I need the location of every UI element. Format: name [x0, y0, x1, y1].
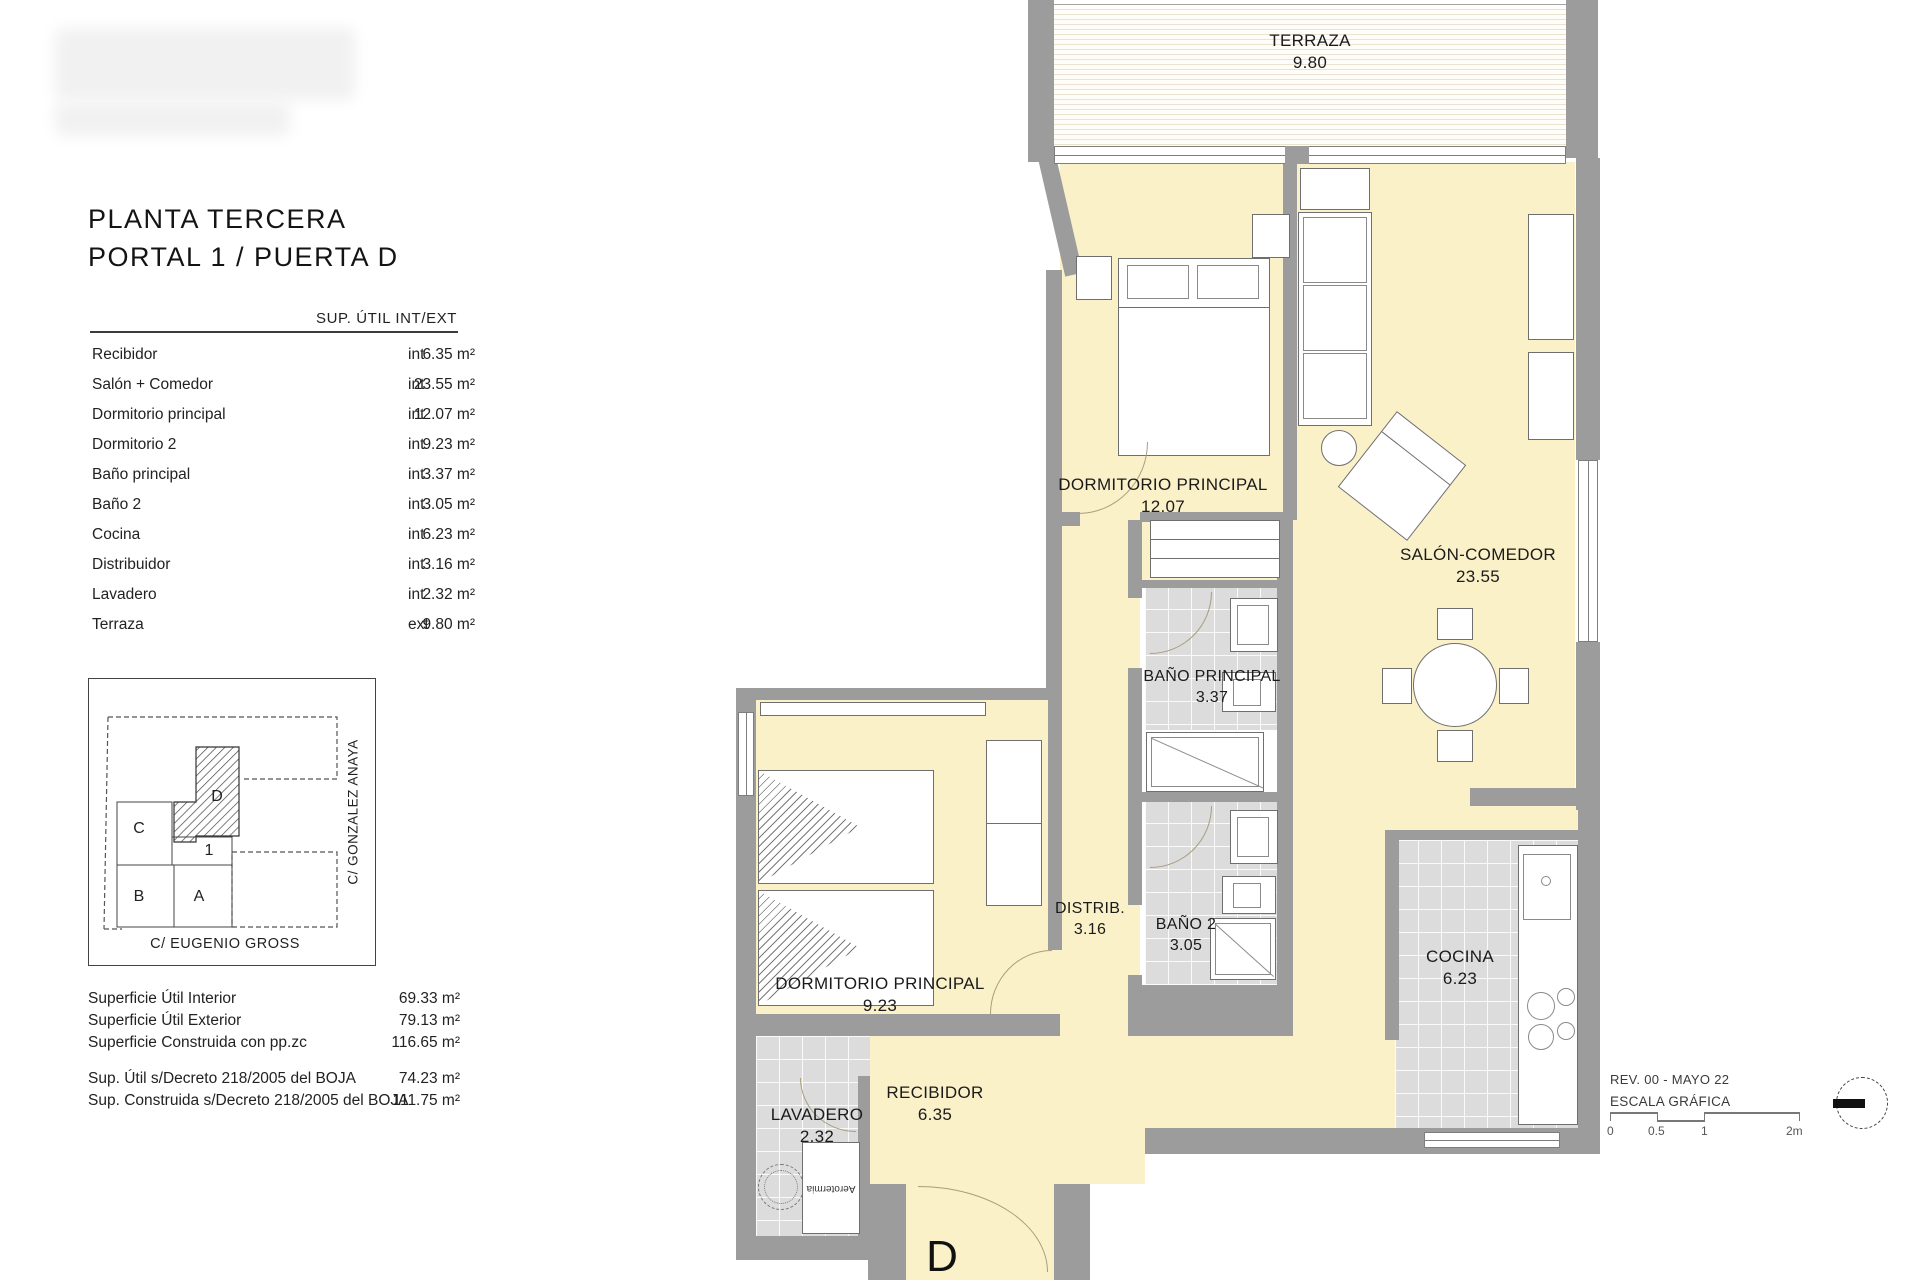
room-type: ext [408, 616, 429, 634]
room-area: 23.55 m² [310, 376, 475, 394]
sofa [1298, 212, 1372, 426]
scale-label-1: 1 [1701, 1124, 1708, 1138]
single-bed [758, 770, 934, 884]
room-type: int [408, 376, 424, 394]
table-row: Dormitorio 2 9.23 m² int [90, 436, 458, 456]
room-name: Baño 2 [92, 496, 141, 514]
table-row: Distribuidor 3.16 m² int [90, 556, 458, 576]
room-type: int [408, 556, 424, 574]
wall [1578, 810, 1600, 1140]
window-terraza-doors [1054, 146, 1566, 164]
room-name: Lavadero [92, 586, 157, 604]
room-label-text: BAÑO 2 [1156, 916, 1217, 933]
table-row: Dormitorio principal 12.07 m² int [90, 406, 458, 426]
side-table [1300, 168, 1370, 210]
summary-value: 74.23 m² [399, 1070, 460, 1088]
wall [736, 1014, 1060, 1036]
room-label-area: 9.80 [1269, 52, 1350, 74]
chair [1437, 730, 1473, 762]
pillow [1127, 265, 1189, 299]
room-name: Dormitorio 2 [92, 436, 176, 454]
washer-drum [764, 1170, 798, 1204]
room-name: Baño principal [92, 466, 190, 484]
room-label-text: TERRAZA [1269, 31, 1350, 50]
room-area: 3.37 m² [310, 466, 475, 484]
table-row: Recibidor 6.35 m² int [90, 346, 458, 366]
bathroom-sink [1230, 810, 1278, 864]
blanket-line [1119, 307, 1269, 308]
room-area: 12.07 m² [310, 406, 475, 424]
window-cocina [1424, 1132, 1560, 1148]
room-area: 6.35 m² [310, 346, 475, 364]
room-label-terraza: TERRAZA 9.80 [1269, 30, 1350, 74]
tall-wardrobe [986, 740, 1042, 906]
north-symbol-icon [1836, 1077, 1888, 1129]
wall [1576, 158, 1600, 460]
room-type: int [408, 466, 424, 484]
round-ottoman [1321, 430, 1357, 466]
room-label-text: COCINA [1426, 947, 1494, 966]
chair [1499, 668, 1529, 704]
room-label-area: 3.37 [1143, 687, 1280, 708]
room-label-dormitorio-2: DORMITORIO PRINCIPAL 9.23 [775, 973, 984, 1017]
dining-table [1413, 643, 1497, 727]
room-label-area: 9.23 [775, 995, 984, 1017]
wardrobe-line [987, 823, 1041, 824]
scale-segment [1657, 1120, 1705, 1122]
room-label-text: DISTRIB. [1055, 900, 1125, 917]
room-label-area: 3.16 [1055, 919, 1125, 940]
room-label-area: 6.23 [1426, 968, 1494, 990]
room-label-text: SALÓN-COMEDOR [1400, 545, 1556, 564]
sofa-cushion [1303, 285, 1367, 351]
summary-value: 79.13 m² [399, 1012, 460, 1030]
north-symbol-bar [1833, 1099, 1865, 1108]
wall [1140, 580, 1290, 588]
summary-value: 69.33 m² [399, 990, 460, 1008]
faded-logo-artifact [55, 102, 290, 136]
summary-label: Superficie Construida con pp.zc [88, 1034, 307, 1051]
key-map-unit-a: A [194, 888, 205, 906]
room-area: 6.23 m² [310, 526, 475, 544]
room-label-text: DORMITORIO PRINCIPAL [1058, 475, 1267, 494]
key-map-unit-b: B [134, 888, 145, 906]
room-name: Salón + Comedor [92, 376, 213, 394]
summary-row: Superficie Útil Interior 69.33 m² [88, 990, 460, 1008]
wall [1470, 788, 1576, 806]
table-row: Terraza 9.80 m² ext [90, 616, 458, 636]
summary-label: Sup. Útil s/Decreto 218/2005 del BOJA [88, 1070, 356, 1087]
summary-row: Sup. Útil s/Decreto 218/2005 del BOJA 74… [88, 1070, 460, 1088]
summary-value: 116.65 m² [391, 1034, 460, 1052]
scale-segment [1704, 1112, 1800, 1114]
scale-title: ESCALA GRÁFICA [1610, 1094, 1731, 1109]
summary-value: 111.75 m² [393, 1092, 461, 1110]
title-line-1: PLANTA TERCERA [88, 200, 399, 238]
sofa-cushion [1303, 353, 1367, 419]
entry-door-letter: D [912, 1232, 972, 1280]
washing-machine [758, 1164, 804, 1210]
table-row: Cocina 6.23 m² int [90, 526, 458, 546]
room-type: int [408, 586, 424, 604]
street-label-gonzalez-anaya: C/ GONZALEZ ANAYA [346, 739, 361, 884]
wall [1054, 1184, 1090, 1280]
room-label-area: 6.35 [886, 1104, 983, 1126]
summary-row: Superficie Construida con pp.zc 116.65 m… [88, 1034, 460, 1052]
room-area: 9.23 m² [310, 436, 475, 454]
room-name: Dormitorio principal [92, 406, 226, 424]
kitchen-counter [1518, 845, 1578, 1125]
room-name: Recibidor [92, 346, 157, 364]
room-label-distribuidor: DISTRIB. 3.16 [1055, 898, 1125, 940]
wardrobe-line [1151, 558, 1279, 559]
room-label-text: DORMITORIO PRINCIPAL [775, 974, 984, 993]
burner [1557, 1022, 1575, 1040]
area-table-header: SUP. ÚTIL INT/EXT [316, 310, 457, 327]
floor-plan-sheet: PLANTA TERCERA PORTAL 1 / PUERTA D SUP. … [0, 0, 1920, 1280]
window-dormitorio-2 [738, 712, 754, 796]
hall-to-kitchen [1145, 1036, 1290, 1128]
summary-label: Superficie Útil Exterior [88, 1012, 241, 1029]
chair [1382, 668, 1412, 704]
scale-label-05: 0.5 [1648, 1124, 1665, 1138]
nightstand [1076, 256, 1112, 300]
table-row: Lavadero 2.32 m² int [90, 586, 458, 606]
highlighted-unit-d-shape [174, 747, 239, 842]
room-label-text: LAVADERO [771, 1105, 863, 1124]
room-label-dormitorio-principal: DORMITORIO PRINCIPAL 12.07 [1058, 474, 1267, 518]
graphic-scale-bar: 0 0.5 1 2m [1610, 1112, 1800, 1140]
room-label-salon-comedor: SALÓN-COMEDOR 23.55 [1400, 544, 1556, 588]
wall [1395, 830, 1578, 840]
pillow [1197, 265, 1259, 299]
window-glass-line [1055, 155, 1565, 156]
table-row: Salón + Comedor 23.55 m² int [90, 376, 458, 396]
table-rule [90, 331, 458, 333]
summary-row: Sup. Construida s/Decreto 218/2005 del B… [88, 1092, 460, 1110]
room-name: Distribuidor [92, 556, 170, 574]
room-label-text: RECIBIDOR [886, 1083, 983, 1102]
key-map-unit-c: C [133, 820, 145, 838]
burner [1557, 988, 1575, 1006]
scale-label-0: 0 [1607, 1124, 1614, 1138]
faded-logo-artifact [55, 28, 355, 100]
wall [1277, 520, 1293, 1036]
title-line-2: PORTAL 1 / PUERTA D [88, 238, 399, 276]
room-area: 9.80 m² [310, 616, 475, 634]
bathroom-sink [1230, 598, 1278, 652]
wall [1285, 146, 1309, 164]
sofa-cushion [1303, 217, 1367, 283]
sink-basin [1237, 605, 1269, 645]
window-salon [1578, 460, 1598, 642]
wardrobe-line [1151, 539, 1279, 540]
wall [1385, 830, 1399, 1040]
burner [1527, 992, 1555, 1020]
bed-hatch [759, 771, 860, 883]
kitchen-pass [1290, 796, 1395, 1128]
page-title: PLANTA TERCERA PORTAL 1 / PUERTA D [88, 200, 399, 276]
room-label-bano-2: BAÑO 2 3.05 [1156, 914, 1217, 956]
sink-basin [1237, 817, 1269, 857]
toilet [1222, 876, 1276, 914]
table-row: Baño principal 3.37 m² int [90, 466, 458, 486]
summary-label: Sup. Construida s/Decreto 218/2005 del B… [88, 1092, 409, 1109]
terraza-deck [1052, 4, 1568, 150]
scale-label-2m: 2m [1786, 1124, 1803, 1138]
burner [1528, 1024, 1554, 1050]
nightstand [1252, 214, 1290, 258]
faucet-dot [1541, 876, 1551, 886]
window-glass-line [1588, 461, 1589, 641]
street-label-eugenio-gross: C/ EUGENIO GROSS [150, 936, 300, 952]
summary-label: Superficie Útil Interior [88, 990, 236, 1007]
window-glass-line [1425, 1140, 1559, 1141]
sideboard [1528, 352, 1574, 440]
room-label-cocina: COCINA 6.23 [1426, 946, 1494, 990]
wall [1566, 0, 1598, 158]
toilet-tank [1233, 883, 1261, 908]
window-glass-line [746, 713, 747, 795]
chair [1437, 608, 1473, 640]
room-type: int [408, 346, 424, 364]
room-type: int [408, 526, 424, 544]
room-name: Terraza [92, 616, 144, 634]
key-map-unit-1: 1 [205, 842, 214, 860]
wall [1576, 642, 1600, 810]
scale-segment [1610, 1112, 1658, 1114]
wall [1140, 985, 1293, 1036]
key-map-unit-d: D [211, 788, 223, 806]
room-type: int [408, 436, 424, 454]
tv-unit [1528, 214, 1574, 340]
wall [1140, 792, 1290, 802]
revision-note: REV. 00 - MAYO 22 [1610, 1072, 1729, 1087]
wall [1128, 668, 1142, 905]
room-type: int [408, 496, 424, 514]
room-label-text: BAÑO PRINCIPAL [1143, 668, 1280, 685]
key-map-drawing [89, 679, 374, 964]
wall [736, 1236, 870, 1260]
kitchen-sink [1523, 854, 1571, 920]
room-label-area: 12.07 [1058, 496, 1267, 518]
room-area: 2.32 m² [310, 586, 475, 604]
wall [736, 688, 1060, 700]
room-type: int [408, 406, 424, 424]
room-label-area: 23.55 [1400, 566, 1556, 588]
aerotermia-unit: Aerotermia [802, 1142, 860, 1234]
wardrobe [1150, 520, 1280, 578]
wall [1028, 0, 1054, 162]
aerotermia-label: Aerotermia [803, 1183, 859, 1194]
built-in-unit [760, 702, 986, 716]
room-label-area: 3.05 [1156, 935, 1217, 956]
room-label-recibidor: RECIBIDOR 6.35 [886, 1082, 983, 1126]
location-key-map: C B A 1 D [88, 678, 376, 966]
summary-row: Superficie Útil Exterior 79.13 m² [88, 1012, 460, 1030]
double-bed [1118, 258, 1270, 456]
room-label-area: 2.32 [771, 1126, 863, 1148]
room-label-bano-principal: BAÑO PRINCIPAL 3.37 [1143, 666, 1280, 708]
table-row: Baño 2 3.05 m² int [90, 496, 458, 516]
room-label-lavadero: LAVADERO 2.32 [771, 1104, 863, 1148]
room-name: Cocina [92, 526, 140, 544]
room-area: 3.05 m² [310, 496, 475, 514]
room-area: 3.16 m² [310, 556, 475, 574]
wall [868, 1184, 906, 1280]
